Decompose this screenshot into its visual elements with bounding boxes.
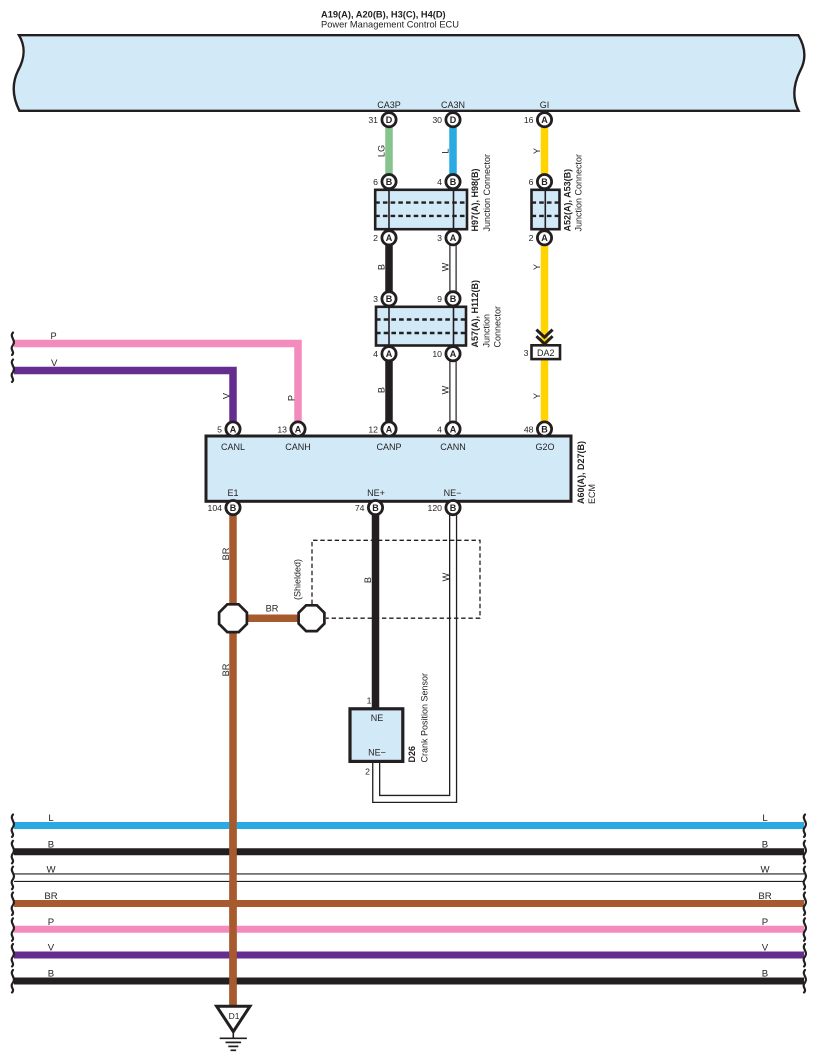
svg-text:D: D xyxy=(450,115,457,125)
svg-text:CANN: CANN xyxy=(440,442,466,452)
svg-text:3: 3 xyxy=(437,233,442,243)
svg-text:Crank Position Sensor: Crank Position Sensor xyxy=(420,673,430,763)
svg-text:W: W xyxy=(441,385,451,394)
svg-text:H97(A), H98(B): H97(A), H98(B) xyxy=(470,168,480,231)
svg-text:1: 1 xyxy=(367,696,372,706)
svg-text:CA3P: CA3P xyxy=(377,100,401,110)
svg-text:3: 3 xyxy=(524,348,529,358)
svg-text:30: 30 xyxy=(432,115,442,125)
svg-text:2: 2 xyxy=(373,233,378,243)
svg-text:120: 120 xyxy=(428,503,443,513)
svg-text:P: P xyxy=(48,917,54,928)
svg-text:E1: E1 xyxy=(227,488,238,498)
svg-text:V: V xyxy=(222,392,232,399)
svg-text:Power Management Control ECU: Power Management Control ECU xyxy=(321,20,459,30)
svg-text:Junction: Junction xyxy=(482,314,492,348)
svg-text:B: B xyxy=(450,177,457,187)
svg-text:B: B xyxy=(363,577,373,583)
svg-text:13: 13 xyxy=(277,424,287,434)
svg-text:A: A xyxy=(386,424,393,434)
svg-text:P: P xyxy=(287,395,297,401)
svg-text:NE: NE xyxy=(371,713,384,723)
svg-text:12: 12 xyxy=(368,424,378,434)
svg-text:CA3N: CA3N xyxy=(441,100,465,110)
svg-text:A57(A), H112(B): A57(A), H112(B) xyxy=(470,280,480,348)
svg-text:B: B xyxy=(541,424,548,434)
svg-text:B: B xyxy=(377,387,387,393)
svg-text:A: A xyxy=(450,424,457,434)
svg-text:NE−: NE− xyxy=(368,748,386,758)
svg-text:ECM: ECM xyxy=(587,484,597,504)
svg-text:4: 4 xyxy=(373,349,378,359)
svg-text:W: W xyxy=(760,865,770,876)
svg-text:BR: BR xyxy=(758,891,771,902)
svg-text:B: B xyxy=(450,294,457,304)
svg-text:V: V xyxy=(762,943,769,954)
svg-text:3: 3 xyxy=(373,294,378,304)
svg-text:A: A xyxy=(386,233,393,243)
svg-text:104: 104 xyxy=(208,503,223,513)
svg-text:A: A xyxy=(541,115,548,125)
svg-text:BR: BR xyxy=(266,604,279,614)
svg-text:B: B xyxy=(372,503,379,513)
svg-text:L: L xyxy=(762,813,768,824)
svg-text:A: A xyxy=(386,349,393,359)
svg-text:B: B xyxy=(48,968,54,979)
svg-text:L: L xyxy=(441,148,451,153)
svg-text:DA2: DA2 xyxy=(537,348,555,358)
svg-text:B: B xyxy=(762,839,768,850)
svg-text:31: 31 xyxy=(368,115,378,125)
svg-text:P: P xyxy=(762,917,768,928)
svg-text:D: D xyxy=(386,115,393,125)
svg-text:Junction Connector: Junction Connector xyxy=(574,154,584,232)
svg-text:CANL: CANL xyxy=(221,442,245,452)
svg-text:GI: GI xyxy=(540,100,550,110)
svg-text:BR: BR xyxy=(221,663,231,676)
svg-text:D1: D1 xyxy=(229,1011,240,1021)
svg-text:A: A xyxy=(295,424,302,434)
svg-text:CANH: CANH xyxy=(285,442,311,452)
svg-text:A: A xyxy=(450,349,457,359)
svg-text:Y: Y xyxy=(532,148,542,154)
svg-text:A60(A), D27(B): A60(A), D27(B) xyxy=(576,441,586,504)
svg-text:B: B xyxy=(386,177,393,187)
svg-text:D26: D26 xyxy=(407,746,417,763)
svg-text:Y: Y xyxy=(532,264,542,270)
svg-text:(Shielded): (Shielded) xyxy=(293,559,303,600)
svg-text:CANP: CANP xyxy=(376,442,401,452)
svg-text:A: A xyxy=(230,424,237,434)
svg-text:V: V xyxy=(48,943,55,954)
svg-text:10: 10 xyxy=(432,349,442,359)
svg-text:16: 16 xyxy=(524,115,534,125)
svg-text:9: 9 xyxy=(437,294,442,304)
svg-text:P: P xyxy=(51,331,57,341)
svg-text:5: 5 xyxy=(217,424,222,434)
svg-text:B: B xyxy=(541,177,548,187)
svg-text:W: W xyxy=(441,572,451,581)
svg-text:B: B xyxy=(762,968,768,979)
svg-text:L: L xyxy=(48,813,54,824)
svg-text:W: W xyxy=(46,865,56,876)
svg-text:6: 6 xyxy=(373,177,378,187)
svg-text:4: 4 xyxy=(437,424,442,434)
svg-text:B: B xyxy=(230,503,237,513)
svg-text:NE−: NE− xyxy=(444,488,462,498)
svg-text:W: W xyxy=(441,262,451,271)
svg-text:V: V xyxy=(51,358,58,369)
svg-text:A52(A), A53(B): A52(A), A53(B) xyxy=(563,169,573,232)
svg-text:B: B xyxy=(450,503,457,513)
svg-text:4: 4 xyxy=(437,177,442,187)
svg-text:B: B xyxy=(377,264,387,270)
svg-text:2: 2 xyxy=(365,767,370,777)
svg-text:G2O: G2O xyxy=(535,442,554,452)
svg-text:74: 74 xyxy=(355,503,365,513)
svg-text:B: B xyxy=(48,839,54,850)
svg-text:LG: LG xyxy=(377,145,387,157)
svg-text:A19(A), A20(B), H3(C), H4(D): A19(A), A20(B), H3(C), H4(D) xyxy=(321,10,446,20)
svg-text:Y: Y xyxy=(532,393,542,399)
svg-text:48: 48 xyxy=(524,424,534,434)
svg-text:Connector: Connector xyxy=(493,306,503,348)
svg-text:Junction Connector: Junction Connector xyxy=(482,154,492,232)
svg-text:6: 6 xyxy=(529,177,534,187)
svg-text:BR: BR xyxy=(221,547,231,560)
svg-text:A: A xyxy=(541,233,548,243)
svg-text:A: A xyxy=(450,233,457,243)
svg-text:NE+: NE+ xyxy=(367,488,385,498)
svg-text:2: 2 xyxy=(529,233,534,243)
svg-text:B: B xyxy=(386,294,393,304)
svg-text:BR: BR xyxy=(44,891,57,902)
